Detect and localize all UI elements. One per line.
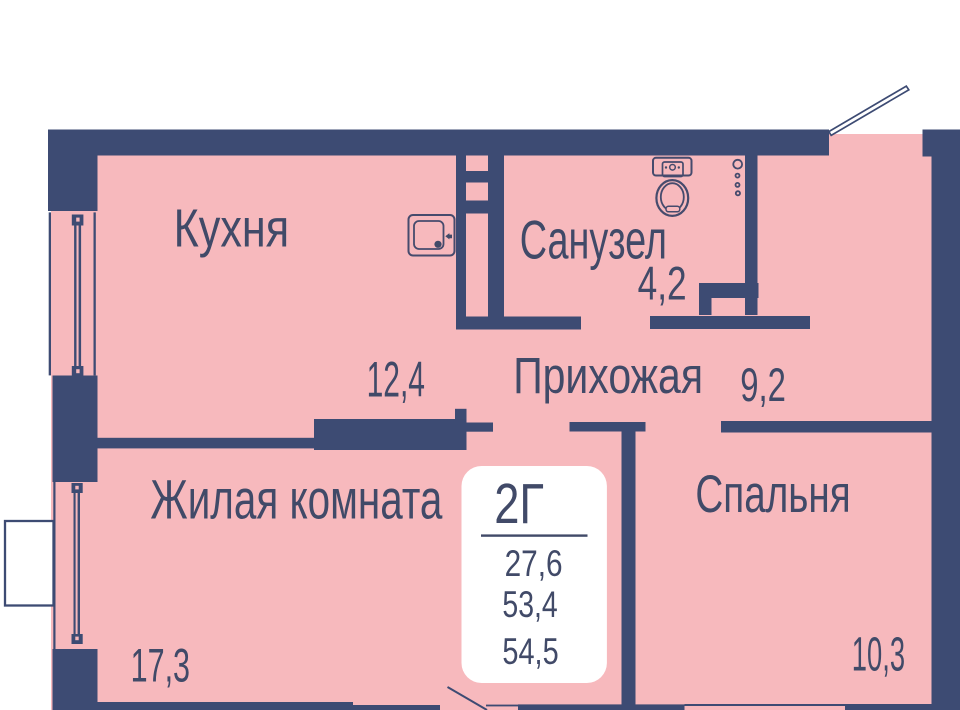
svg-text:Кухня: Кухня	[174, 199, 290, 259]
svg-text:53,4: 53,4	[502, 584, 557, 626]
svg-text:4,2: 4,2	[638, 256, 687, 309]
svg-text:9,2: 9,2	[740, 358, 786, 411]
svg-text:27,6: 27,6	[505, 543, 563, 585]
svg-text:Жилая комната: Жилая комната	[150, 469, 442, 531]
svg-text:12,4: 12,4	[367, 352, 425, 408]
svg-text:2Г: 2Г	[494, 471, 544, 535]
svg-text:54,5: 54,5	[502, 631, 558, 672]
svg-text:17,3: 17,3	[131, 640, 190, 692]
svg-text:10,3: 10,3	[852, 627, 905, 681]
svg-text:Спальня: Спальня	[695, 464, 850, 523]
svg-text:Прихожая: Прихожая	[513, 347, 703, 404]
